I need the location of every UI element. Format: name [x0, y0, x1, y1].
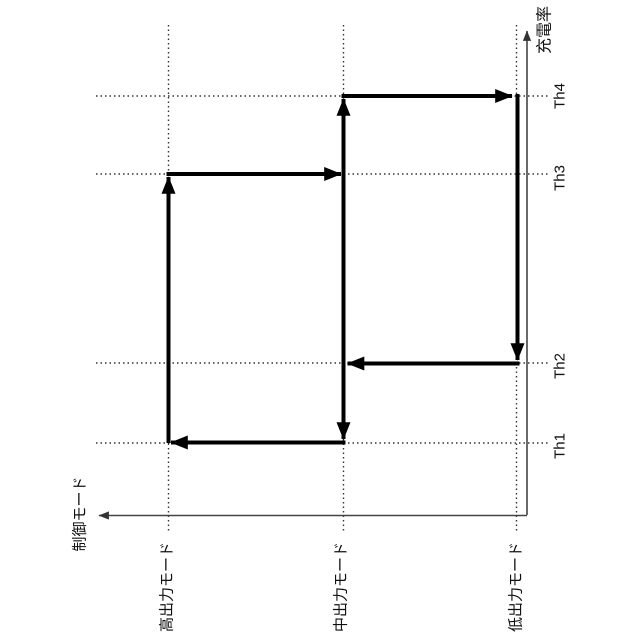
- figure-container: 充電率 制御モード Th1 Th2 Th3 Th4 高出力モード 中出力モード …: [0, 0, 640, 640]
- gridlines: [96, 25, 550, 532]
- tick-label-th2: Th2: [552, 353, 569, 379]
- charge-rate-axis-label: 充電率: [536, 6, 554, 54]
- tick-label-th4: Th4: [552, 83, 569, 109]
- mode-label-low-output: 低出力モード: [508, 542, 525, 632]
- mode-label-mid-output: 中出力モード: [333, 542, 350, 632]
- tick-label-th3: Th3: [552, 165, 569, 191]
- tick-label-th1: Th1: [552, 433, 569, 459]
- mode-transition-diagram: 充電率 制御モード Th1 Th2 Th3 Th4 高出力モード 中出力モード …: [0, 0, 640, 640]
- transition-path: [167, 94, 520, 443]
- control-mode-axis-label: 制御モード: [72, 476, 89, 551]
- mode-label-high-output: 高出力モード: [159, 542, 176, 632]
